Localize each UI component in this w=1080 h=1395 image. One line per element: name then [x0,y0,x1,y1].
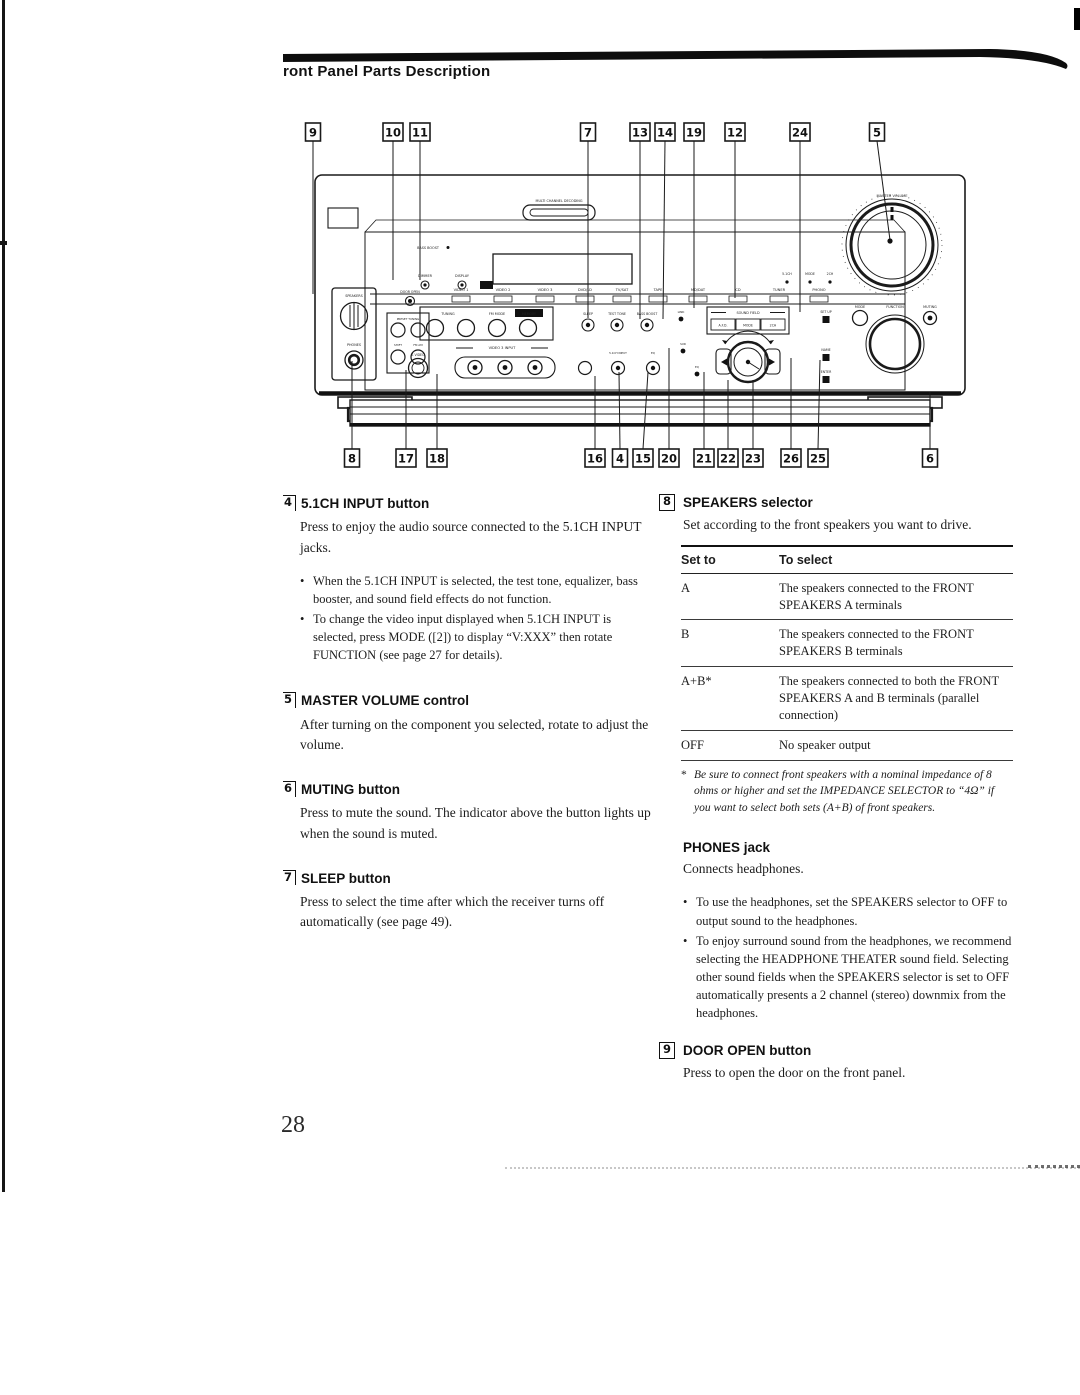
eq-jack: EQ [647,351,660,375]
svg-text:SPEAKERS: SPEAKERS [345,294,363,298]
callout: 6 [923,449,938,467]
svg-text:17: 17 [398,452,414,466]
s-video-jack [409,359,428,378]
svg-text:4: 4 [616,452,624,466]
input-labels-row: VIDEO 1 VIDEO 2 VIDEO 3 DVD/LD TV/SAT TA… [370,288,905,304]
callout: 15 [633,449,653,467]
section-muting: 6MUTING button Press to mute the sound. … [283,780,655,844]
section-body: Press to mute the sound. The indicator a… [300,803,655,844]
section-number: 9 [659,1042,675,1059]
svg-text:24: 24 [792,126,808,140]
svg-text:NAME: NAME [821,348,830,352]
footnote-text: Be sure to connect front speakers with a… [694,767,1013,817]
svg-text:MUTING: MUTING [923,305,937,309]
front-panel-diagram: MULTI CHANNEL DECODING BASS BOOST DIMMER [270,108,1010,488]
scan-noise-line [505,1167,1080,1169]
cell-to-select: The speakers connected to the FRONT SPEA… [779,573,1013,620]
svg-text:S VIDEO: S VIDEO [411,353,425,357]
section-master-volume: 5MASTER VOLUME control After turning on … [283,691,655,755]
bullet-item: To enjoy surround sound from the headpho… [683,932,1013,1023]
svg-text:2CH: 2CH [770,324,777,328]
section-body: Press to open the door on the front pane… [683,1063,1013,1083]
section-body: Press to select the time after which the… [300,892,655,933]
section-51ch-input: 45.1CH INPUT button Press to enjoy the a… [283,494,655,664]
section-number: 4 [283,495,296,511]
multi-channel-decoding-slot: MULTI CHANNEL DECODING [523,199,595,220]
section-title: PHONES jack [683,839,1013,857]
cell-set-to: A+B* [681,667,779,731]
svg-text:12: 12 [727,126,743,140]
svg-text:8: 8 [348,452,356,466]
section-speakers-selector: 8 SPEAKERS selector Set according to the… [683,494,1013,817]
svg-text:PHONO: PHONO [812,288,825,292]
table-row: A+B* The speakers connected to both the … [681,667,1013,731]
svg-text:VIDEO 2: VIDEO 2 [496,288,511,292]
callouts-bottom: 8 17 18 16 4 15 20 21 22 23 26 25 6 [345,449,938,467]
display-window [493,254,632,284]
callout: 26 [781,449,801,467]
callout: 17 [396,449,416,467]
svg-text:TUNER: TUNER [772,288,786,292]
section-body: Set according to the front speakers you … [683,515,1013,535]
callouts-top: 9 10 11 7 13 14 19 12 24 5 [306,123,885,141]
manual-page: ront Panel Parts Description [0,0,1080,1395]
svg-text:6: 6 [926,452,934,466]
svg-text:MODE: MODE [855,305,865,309]
svg-text:LINK: LINK [678,310,686,314]
svg-text:VIDEO 3 INPUT: VIDEO 3 INPUT [489,346,517,350]
callout: 9 [306,123,321,141]
svg-text:16: 16 [587,452,603,466]
callout: 22 [718,449,738,467]
svg-text:FM MODE: FM MODE [489,312,505,316]
jog-dial [716,331,780,382]
svg-text:A.F.D.: A.F.D. [719,324,728,328]
callout: 4 [613,449,628,467]
section-door-open: 9 DOOR OPEN button Press to open the doo… [683,1042,1013,1083]
svg-text:SET UP: SET UP [820,310,831,314]
svg-text:FM AM: FM AM [413,343,423,347]
svg-text:5.1CH: 5.1CH [782,272,792,276]
tuning-button-group: TUNING FM MODE MEMORY [420,307,553,340]
callout: 19 [684,123,704,141]
svg-text:22: 22 [720,452,736,466]
svg-text:MULTI CHANNEL DECODING: MULTI CHANNEL DECODING [536,199,583,203]
callout: 5 [870,123,885,141]
name-button: NAME [821,348,830,361]
svg-text:FUNCTION: FUNCTION [886,305,904,309]
callout: 14 [655,123,675,141]
svg-text:DVD/LD: DVD/LD [578,288,592,292]
cell-set-to: B [681,620,779,667]
door-open-button: DOOR OPEN [400,290,420,306]
bullet-list: To use the headphones, set the SPEAKERS … [683,893,1013,1022]
av-mute-button [579,362,592,375]
svg-text:21: 21 [696,452,712,466]
svg-text:VIDEO 3: VIDEO 3 [538,288,553,292]
callout: 11 [410,123,430,141]
table-row: B The speakers connected to the FRONT SP… [681,620,1013,667]
section-number: 5 [283,692,296,708]
svg-text:26: 26 [783,452,799,466]
callout: 24 [790,123,810,141]
svg-text:DOOR OPEN: DOOR OPEN [400,290,420,294]
left-column: 45.1CH INPUT button Press to enjoy the a… [283,494,655,933]
speakers-selector: SPEAKERS [332,288,376,380]
cell-to-select: The speakers connected to the FRONT SPEA… [779,620,1013,667]
sound-field-group: SOUND FIELD A.F.D. MODE 2CH [707,307,789,334]
cell-set-to: A [681,573,779,620]
svg-text:CD: CD [735,288,741,292]
svg-text:SOUND FIELD: SOUND FIELD [736,311,760,315]
section-phones-jack: PHONES jack Connects headphones. To use … [683,839,1013,1023]
footnote-marker: * [681,767,694,817]
callout: 20 [659,449,679,467]
svg-text:TAPE: TAPE [653,288,664,292]
channel-indicators: 5.1CH MODE 2CH [782,272,834,284]
video3-input-group: VIDEO 3 INPUT S VIDEO [409,346,556,378]
section-number: 6 [283,781,296,797]
section-body: Press to enjoy the audio source connecte… [300,517,655,558]
cell-set-to: OFF [681,730,779,760]
sur-button: SUR [680,342,686,353]
right-column: 8 SPEAKERS selector Set according to the… [683,494,1013,1083]
scan-noise-line-dark [1028,1165,1080,1168]
section-title: MUTING button [301,782,400,797]
svg-text:2CH: 2CH [827,272,834,276]
svg-text:14: 14 [657,126,673,140]
bullet-item: To change the video input displayed when… [300,610,655,664]
svg-text:TUNING: TUNING [440,312,455,316]
page-number: 28 [281,1112,305,1139]
table-header-row: Set to To select [681,546,1013,573]
svg-text:7: 7 [584,126,592,140]
svg-text:MASTER VOLUME: MASTER VOLUME [877,194,909,198]
svg-text:13: 13 [632,126,648,140]
svg-text:5: 5 [873,126,881,140]
svg-text:TEST TONE: TEST TONE [607,312,626,316]
svg-text:MD/DAT: MD/DAT [691,288,706,292]
svg-text:ENTER: ENTER [821,370,832,374]
section-number: 7 [283,870,296,886]
svg-text:9: 9 [309,126,317,140]
power-switch [328,208,358,228]
svg-text:SHIFT: SHIFT [394,343,402,347]
callout: 12 [725,123,745,141]
svg-text:11: 11 [412,126,428,140]
callout: 23 [743,449,763,467]
svg-text:PHONES: PHONES [347,343,361,347]
central-panel [365,220,905,390]
callout: 7 [581,123,596,141]
col-header: Set to [681,546,779,573]
callout: 13 [630,123,650,141]
bullet-item: To use the headphones, set the SPEAKERS … [683,893,1013,929]
svg-text:PRESET TUNING: PRESET TUNING [397,317,419,321]
cell-to-select: The speakers connected to both the FRONT… [779,667,1013,731]
muting-button: MUTING [923,305,937,325]
function-knob: FUNCTION [866,305,924,373]
master-volume-knob: MASTER VOLUME [842,194,942,295]
svg-text:25: 25 [810,452,826,466]
section-title: SPEAKERS selector [683,494,1013,512]
svg-text:MEMORY: MEMORY [522,312,536,316]
callout: 16 [585,449,605,467]
bullet-list: When the 5.1CH INPUT is selected, the te… [300,572,655,665]
svg-text:DISPLAY: DISPLAY [455,274,470,278]
ir-sensor [480,281,493,289]
test-tone-button: TEST TONE [607,312,626,331]
svg-text:MODE: MODE [805,272,815,276]
eq-button: EQ [695,365,700,376]
bass-boost-indicator: BASS BOOST [417,246,449,250]
section-title: MASTER VOLUME control [301,693,469,708]
section-title: 5.1CH INPUT button [301,496,429,511]
svg-text:18: 18 [429,452,445,466]
page-title: ront Panel Parts Description [283,63,490,80]
svg-text:5.1CH INPUT: 5.1CH INPUT [609,351,627,355]
display-button: DISPLAY [455,274,470,289]
speakers-table: Set to To select A The speakers connecte… [681,545,1013,761]
svg-text:VIDEO 1: VIDEO 1 [454,288,469,292]
cell-to-select: No speaker output [779,730,1013,760]
bullet-item: When the 5.1CH INPUT is selected, the te… [300,572,655,608]
set-up-button: SET UP [820,310,831,323]
scan-edge-line [2,0,5,1192]
svg-text:EQ: EQ [651,351,656,355]
phones-jack: PHONES [345,343,363,369]
table-row: OFF No speaker output [681,730,1013,760]
svg-text:TV/SAT: TV/SAT [615,288,629,292]
51ch-input-jack: 5.1CH INPUT [609,351,627,375]
svg-text:20: 20 [661,452,677,466]
callout: 18 [427,449,447,467]
table-footnote: * Be sure to connect front speakers with… [681,767,1013,817]
svg-text:19: 19 [686,126,702,140]
svg-text:23: 23 [745,452,761,466]
callout: 10 [383,123,403,141]
section-title: DOOR OPEN button [683,1042,1013,1060]
callout: 8 [345,449,360,467]
scan-corner-mark [1074,8,1080,30]
section-body: Connects headphones. [683,859,1013,879]
callout: 21 [694,449,714,467]
mode-button: MODE [853,305,868,326]
callout: 25 [808,449,828,467]
svg-text:MODE: MODE [743,324,753,328]
svg-text:EQ: EQ [695,365,700,369]
section-sleep: 7SLEEP button Press to select the time a… [283,869,655,933]
col-header: To select [779,546,1013,573]
link-indicator: LINK [678,310,686,321]
scan-edge-tick [0,241,7,245]
table-row: A The speakers connected to the FRONT SP… [681,573,1013,620]
enter-button: ENTER [821,370,832,383]
section-body: After turning on the component you selec… [300,715,655,756]
section-number: 8 [659,494,675,511]
svg-text:10: 10 [385,126,401,140]
svg-text:15: 15 [635,452,651,466]
section-title: SLEEP button [301,871,391,886]
svg-text:SUR: SUR [680,342,686,346]
